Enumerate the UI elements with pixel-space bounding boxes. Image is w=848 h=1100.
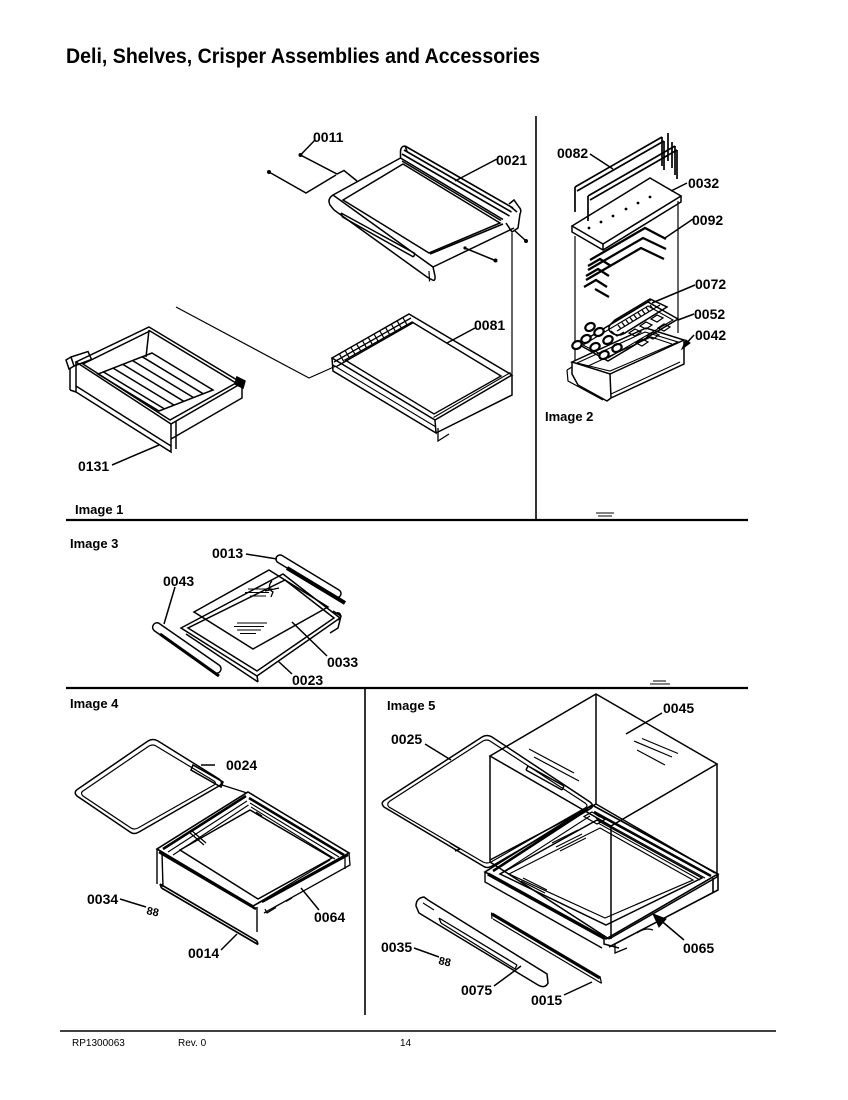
- svg-text:Deli, Shelves, Crisper Assembl: Deli, Shelves, Crisper Assemblies and Ac…: [66, 45, 540, 68]
- svg-text:0033: 0033: [327, 654, 358, 670]
- svg-text:Image 5: Image 5: [387, 698, 435, 713]
- svg-text:0014: 0014: [188, 945, 219, 961]
- svg-text:0092: 0092: [692, 212, 723, 228]
- svg-text:0023: 0023: [292, 672, 323, 688]
- svg-text:0021: 0021: [496, 152, 527, 168]
- svg-text:0065: 0065: [683, 940, 714, 956]
- svg-text:Rev. 0: Rev. 0: [178, 1038, 207, 1049]
- svg-text:0034: 0034: [87, 891, 118, 907]
- svg-text:0131: 0131: [78, 458, 109, 474]
- svg-text:0013: 0013: [212, 545, 243, 561]
- svg-text:0045: 0045: [663, 700, 694, 716]
- svg-text:0075: 0075: [461, 982, 492, 998]
- svg-text:0024: 0024: [226, 757, 257, 773]
- svg-text:0052: 0052: [694, 306, 725, 322]
- svg-text:Image 1: Image 1: [75, 502, 123, 517]
- svg-text:0011: 0011: [313, 129, 344, 145]
- svg-text:14: 14: [400, 1038, 412, 1049]
- svg-text:0035: 0035: [381, 939, 412, 955]
- svg-text:Image 3: Image 3: [70, 536, 118, 551]
- svg-text:0081: 0081: [474, 317, 505, 333]
- svg-text:0042: 0042: [695, 327, 726, 343]
- svg-text:Image 2: Image 2: [545, 409, 593, 424]
- svg-text:RP1300063: RP1300063: [72, 1038, 125, 1049]
- svg-text:0015: 0015: [531, 992, 562, 1008]
- svg-text:88: 88: [145, 905, 159, 919]
- svg-text:0082: 0082: [557, 145, 588, 161]
- svg-text:88: 88: [437, 955, 451, 969]
- svg-text:0072: 0072: [695, 276, 726, 292]
- svg-text:0025: 0025: [391, 731, 422, 747]
- svg-text:Image 4: Image 4: [70, 696, 119, 711]
- svg-text:0043: 0043: [163, 573, 194, 589]
- svg-text:0032: 0032: [688, 175, 719, 191]
- svg-text:0064: 0064: [314, 909, 345, 925]
